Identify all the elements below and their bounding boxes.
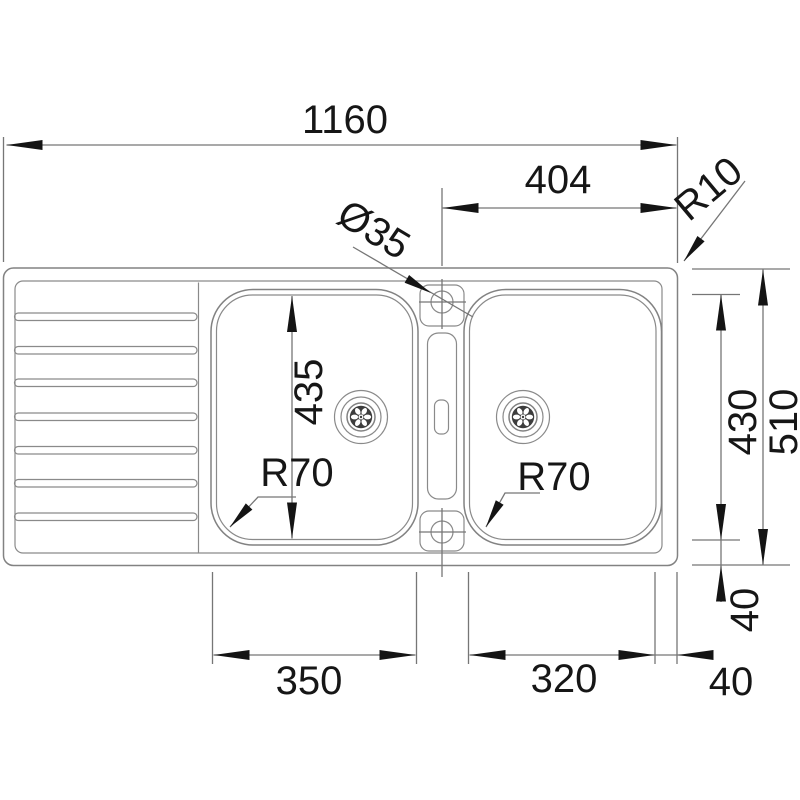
dim-label-left-bowl-depth: 435 [287, 359, 331, 426]
dimension-right-bowl-width-320: 320 [469, 572, 656, 701]
left-drain-strainer [335, 391, 388, 444]
arrowhead [470, 650, 506, 660]
arrowhead [684, 236, 705, 261]
dim-label-right-bowl-width: 320 [531, 657, 598, 701]
sink-rim-inner-edge [15, 281, 662, 553]
drainer-ridge [15, 447, 198, 455]
drain-hole [351, 415, 358, 420]
arrowhead [486, 500, 504, 527]
technical-drawing-page: 1160 404 435 430 510 40 [0, 0, 800, 800]
arrowhead [230, 503, 252, 527]
dim-label-right-bowl-offset: 404 [525, 158, 592, 202]
center-divider [419, 279, 466, 577]
drainer-ridge [15, 480, 198, 488]
drain-hole [526, 415, 533, 420]
arrowhead [758, 270, 768, 306]
dim-label-bottom-edge-gap: 40 [723, 588, 767, 633]
dimension-left-bowl-width-350: 350 [213, 572, 417, 703]
drain-hole [513, 415, 520, 420]
arrowhead [405, 275, 431, 293]
callout-outer-corner-radius: R10 [666, 149, 751, 261]
overflow-slot [435, 400, 449, 434]
callout-left-bowl-radius: R70 [230, 451, 334, 527]
arrowhead [641, 203, 677, 213]
drainer-ridge [15, 413, 198, 421]
drainer-ridge [15, 347, 198, 355]
dimension-bottom-edge-gap-40: 40 [716, 566, 767, 633]
drain-hole [364, 415, 371, 420]
divider-channel [428, 333, 457, 499]
dimension-right-bowl-offset-404: 404 [442, 158, 677, 266]
dim-label-right-bowl-depth: 430 [721, 389, 765, 456]
label-tap-hole-diameter: Ø35 [330, 192, 417, 269]
arrowhead [641, 140, 677, 150]
dim-label-right-edge-gap: 40 [709, 660, 754, 704]
drainer-ridge [15, 313, 198, 321]
dim-label-left-bowl-width: 350 [276, 659, 343, 703]
right-drain-strainer [497, 391, 550, 444]
drain-center-dot [522, 416, 524, 418]
arrowhead [7, 140, 43, 150]
dimension-right-bowl-depth-430: 430 [692, 295, 765, 603]
dim-label-overall-depth: 510 [762, 389, 800, 456]
dim-label-overall-width: 1160 [302, 98, 388, 142]
callout-right-bowl-radius: R70 [486, 455, 591, 527]
leader-line [230, 497, 296, 527]
arrowhead [380, 650, 416, 660]
dimension-left-bowl-depth-435: 435 [287, 296, 331, 539]
arrowhead [443, 203, 479, 213]
arrowhead [716, 295, 726, 331]
label-right-bowl-radius: R70 [517, 455, 590, 499]
arrowhead [287, 503, 297, 539]
drainer-ridge [15, 379, 198, 387]
arrowhead [678, 650, 714, 660]
arrowhead [287, 296, 297, 332]
arrowhead [214, 650, 250, 660]
sink-technical-drawing: 1160 404 435 430 510 40 [0, 0, 800, 800]
arrowhead [619, 650, 655, 660]
drainer-ridges [15, 313, 198, 521]
label-outer-corner-radius: R10 [666, 149, 751, 230]
label-left-bowl-radius: R70 [260, 451, 333, 495]
drainer-ridge [15, 513, 198, 521]
drain-center-dot [360, 416, 362, 418]
arrowhead [758, 529, 768, 565]
arrowhead [716, 504, 726, 540]
